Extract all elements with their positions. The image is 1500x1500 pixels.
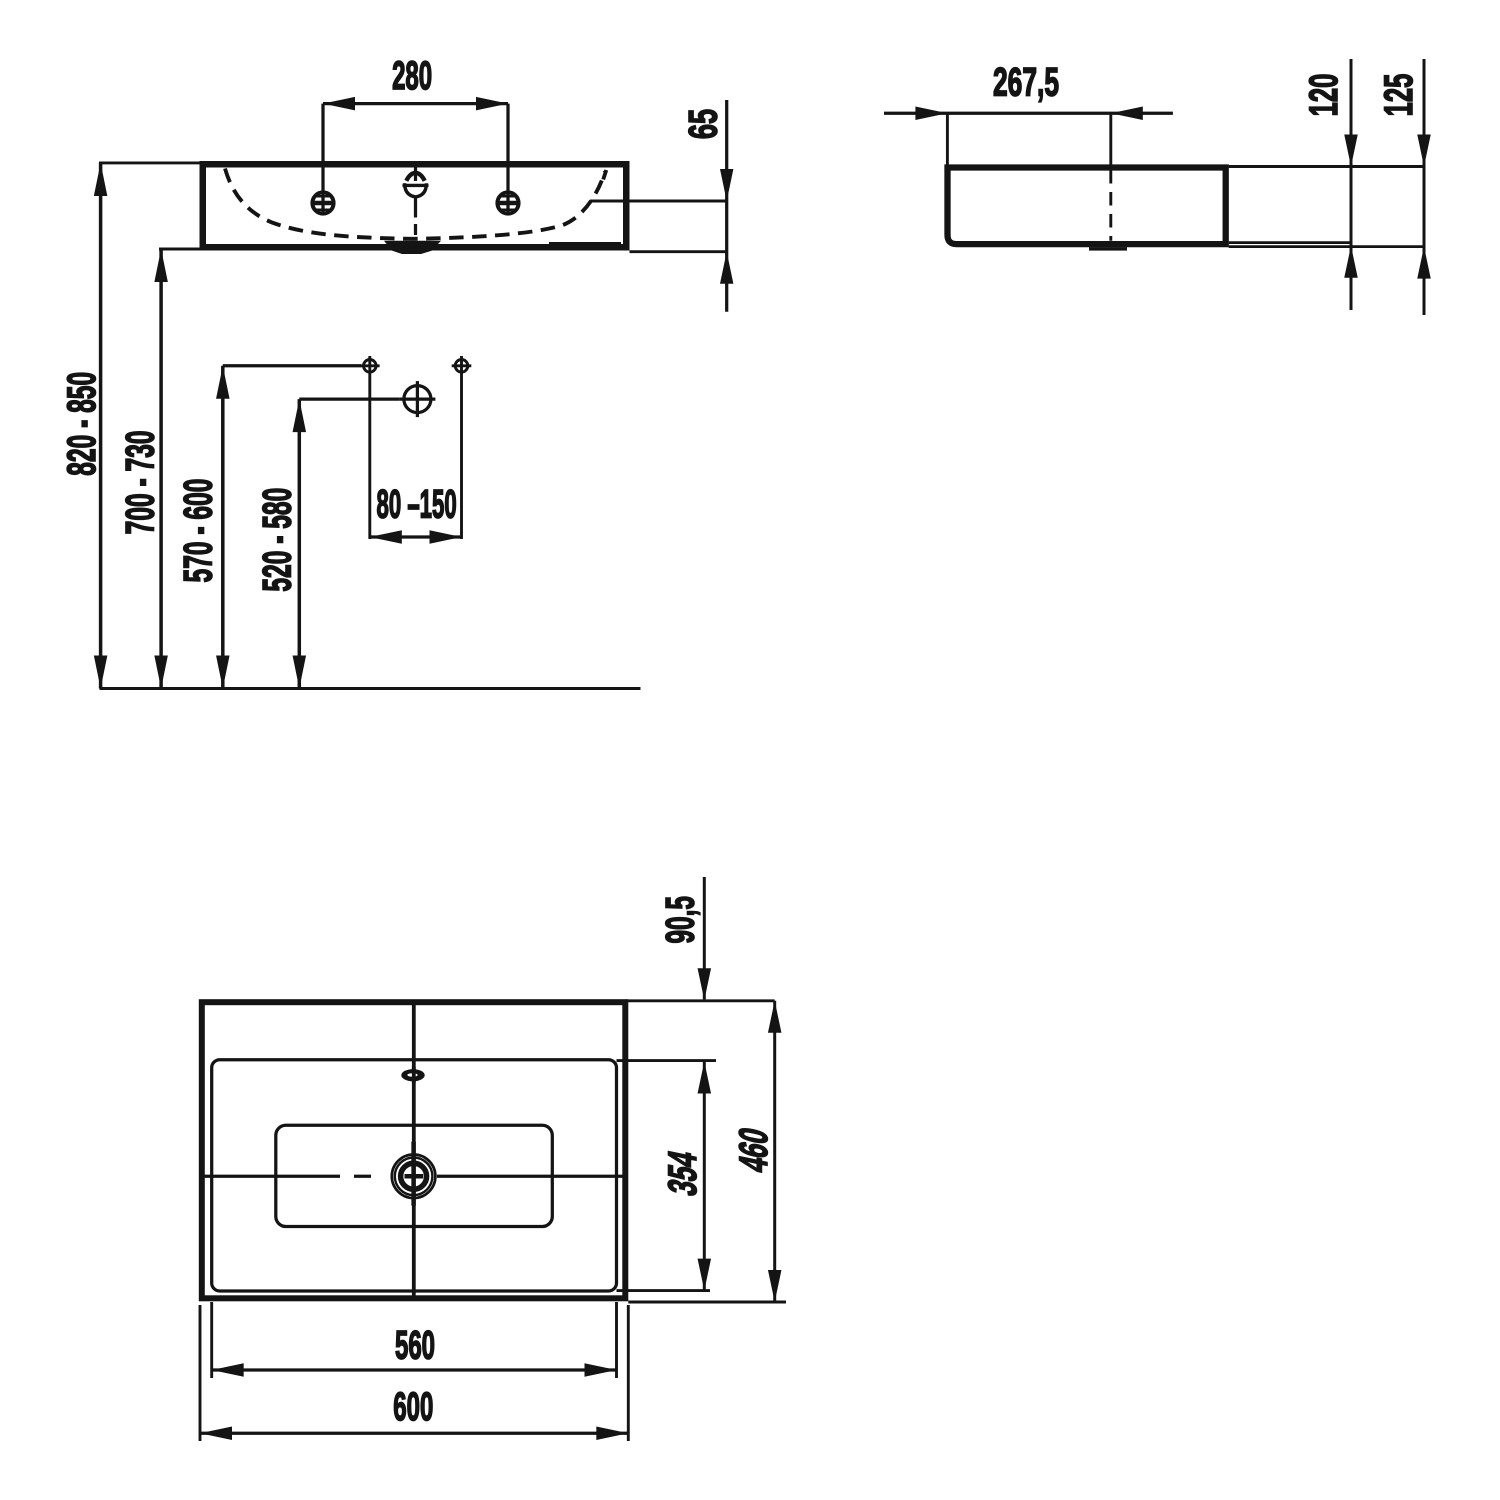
svg-text:570 - 600: 570 - 600 <box>177 479 222 583</box>
svg-text:820 - 850: 820 - 850 <box>60 372 105 476</box>
svg-text:354: 354 <box>661 1147 706 1199</box>
svg-text:80 –150: 80 –150 <box>377 482 457 527</box>
svg-text:267,5: 267,5 <box>993 60 1059 105</box>
svg-text:65: 65 <box>681 109 725 139</box>
svg-text:125: 125 <box>1377 74 1421 117</box>
svg-text:600: 600 <box>393 1384 433 1429</box>
svg-text:520 - 580: 520 - 580 <box>256 488 301 592</box>
svg-text:120: 120 <box>1302 74 1346 117</box>
svg-text:560: 560 <box>395 1322 435 1367</box>
svg-text:700 - 730: 700 - 730 <box>119 430 164 534</box>
svg-text:90,5: 90,5 <box>659 896 704 943</box>
svg-text:280: 280 <box>392 53 432 98</box>
svg-text:460: 460 <box>732 1124 777 1176</box>
